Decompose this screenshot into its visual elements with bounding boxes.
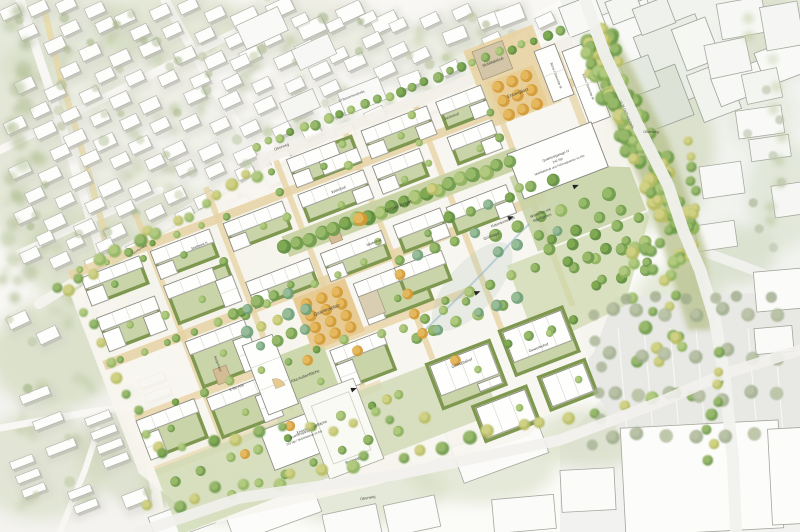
svg-text:Oberweg: Oberweg xyxy=(643,130,658,134)
